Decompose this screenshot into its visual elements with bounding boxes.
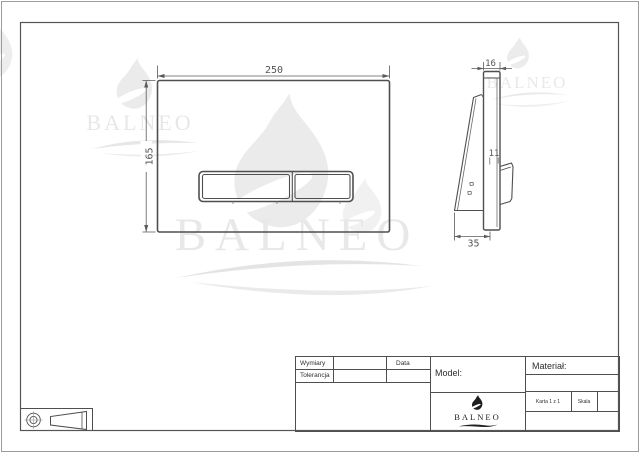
titleblock-date-label: Data	[396, 360, 410, 367]
titleblock-scale-label: Skala	[571, 399, 597, 405]
watermark-brand-text: BALNEO	[86, 110, 193, 135]
titleblock-brand-name: BALNEO	[454, 412, 500, 422]
drawing-sheet: BALNEO BALNEO BALNEO 250	[0, 0, 640, 453]
dim-base-depth-value: 35	[467, 239, 479, 250]
dim-button-depth-value: 11	[489, 149, 500, 159]
titleblock-tolerance-label: Tolerancja	[300, 372, 330, 379]
titleblock-material-label: Materiał:	[532, 361, 567, 371]
side-view-button-protrusion	[500, 163, 513, 205]
projection-symbol	[21, 409, 93, 431]
side-view	[455, 72, 514, 231]
dim-side-thickness-value: 16	[485, 59, 496, 69]
balneo-wave-icon	[457, 423, 499, 429]
titleblock-dimensions-label: Wymiary	[300, 360, 325, 367]
title-block: Wymiary Tolerancja Data Model: Materiał:…	[295, 356, 620, 432]
projection-cone	[51, 412, 87, 430]
dim-front-width-value: 250	[265, 65, 283, 76]
dim-front-height-value: 165	[145, 147, 156, 165]
side-view-mount-frame	[455, 95, 484, 211]
flame-watermark-center	[223, 93, 328, 227]
titleblock-sheet-label: Karta 1 z 1	[525, 399, 571, 405]
titleblock-brand-logo: BALNEO	[430, 393, 525, 430]
flame-watermark-topright	[504, 37, 529, 68]
watermark-brand-text: BALNEO	[487, 73, 568, 92]
titleblock-model-label: Model:	[435, 368, 462, 378]
balneo-flame-icon	[471, 395, 484, 411]
watermark-brand-text: BALNEO	[175, 209, 420, 261]
